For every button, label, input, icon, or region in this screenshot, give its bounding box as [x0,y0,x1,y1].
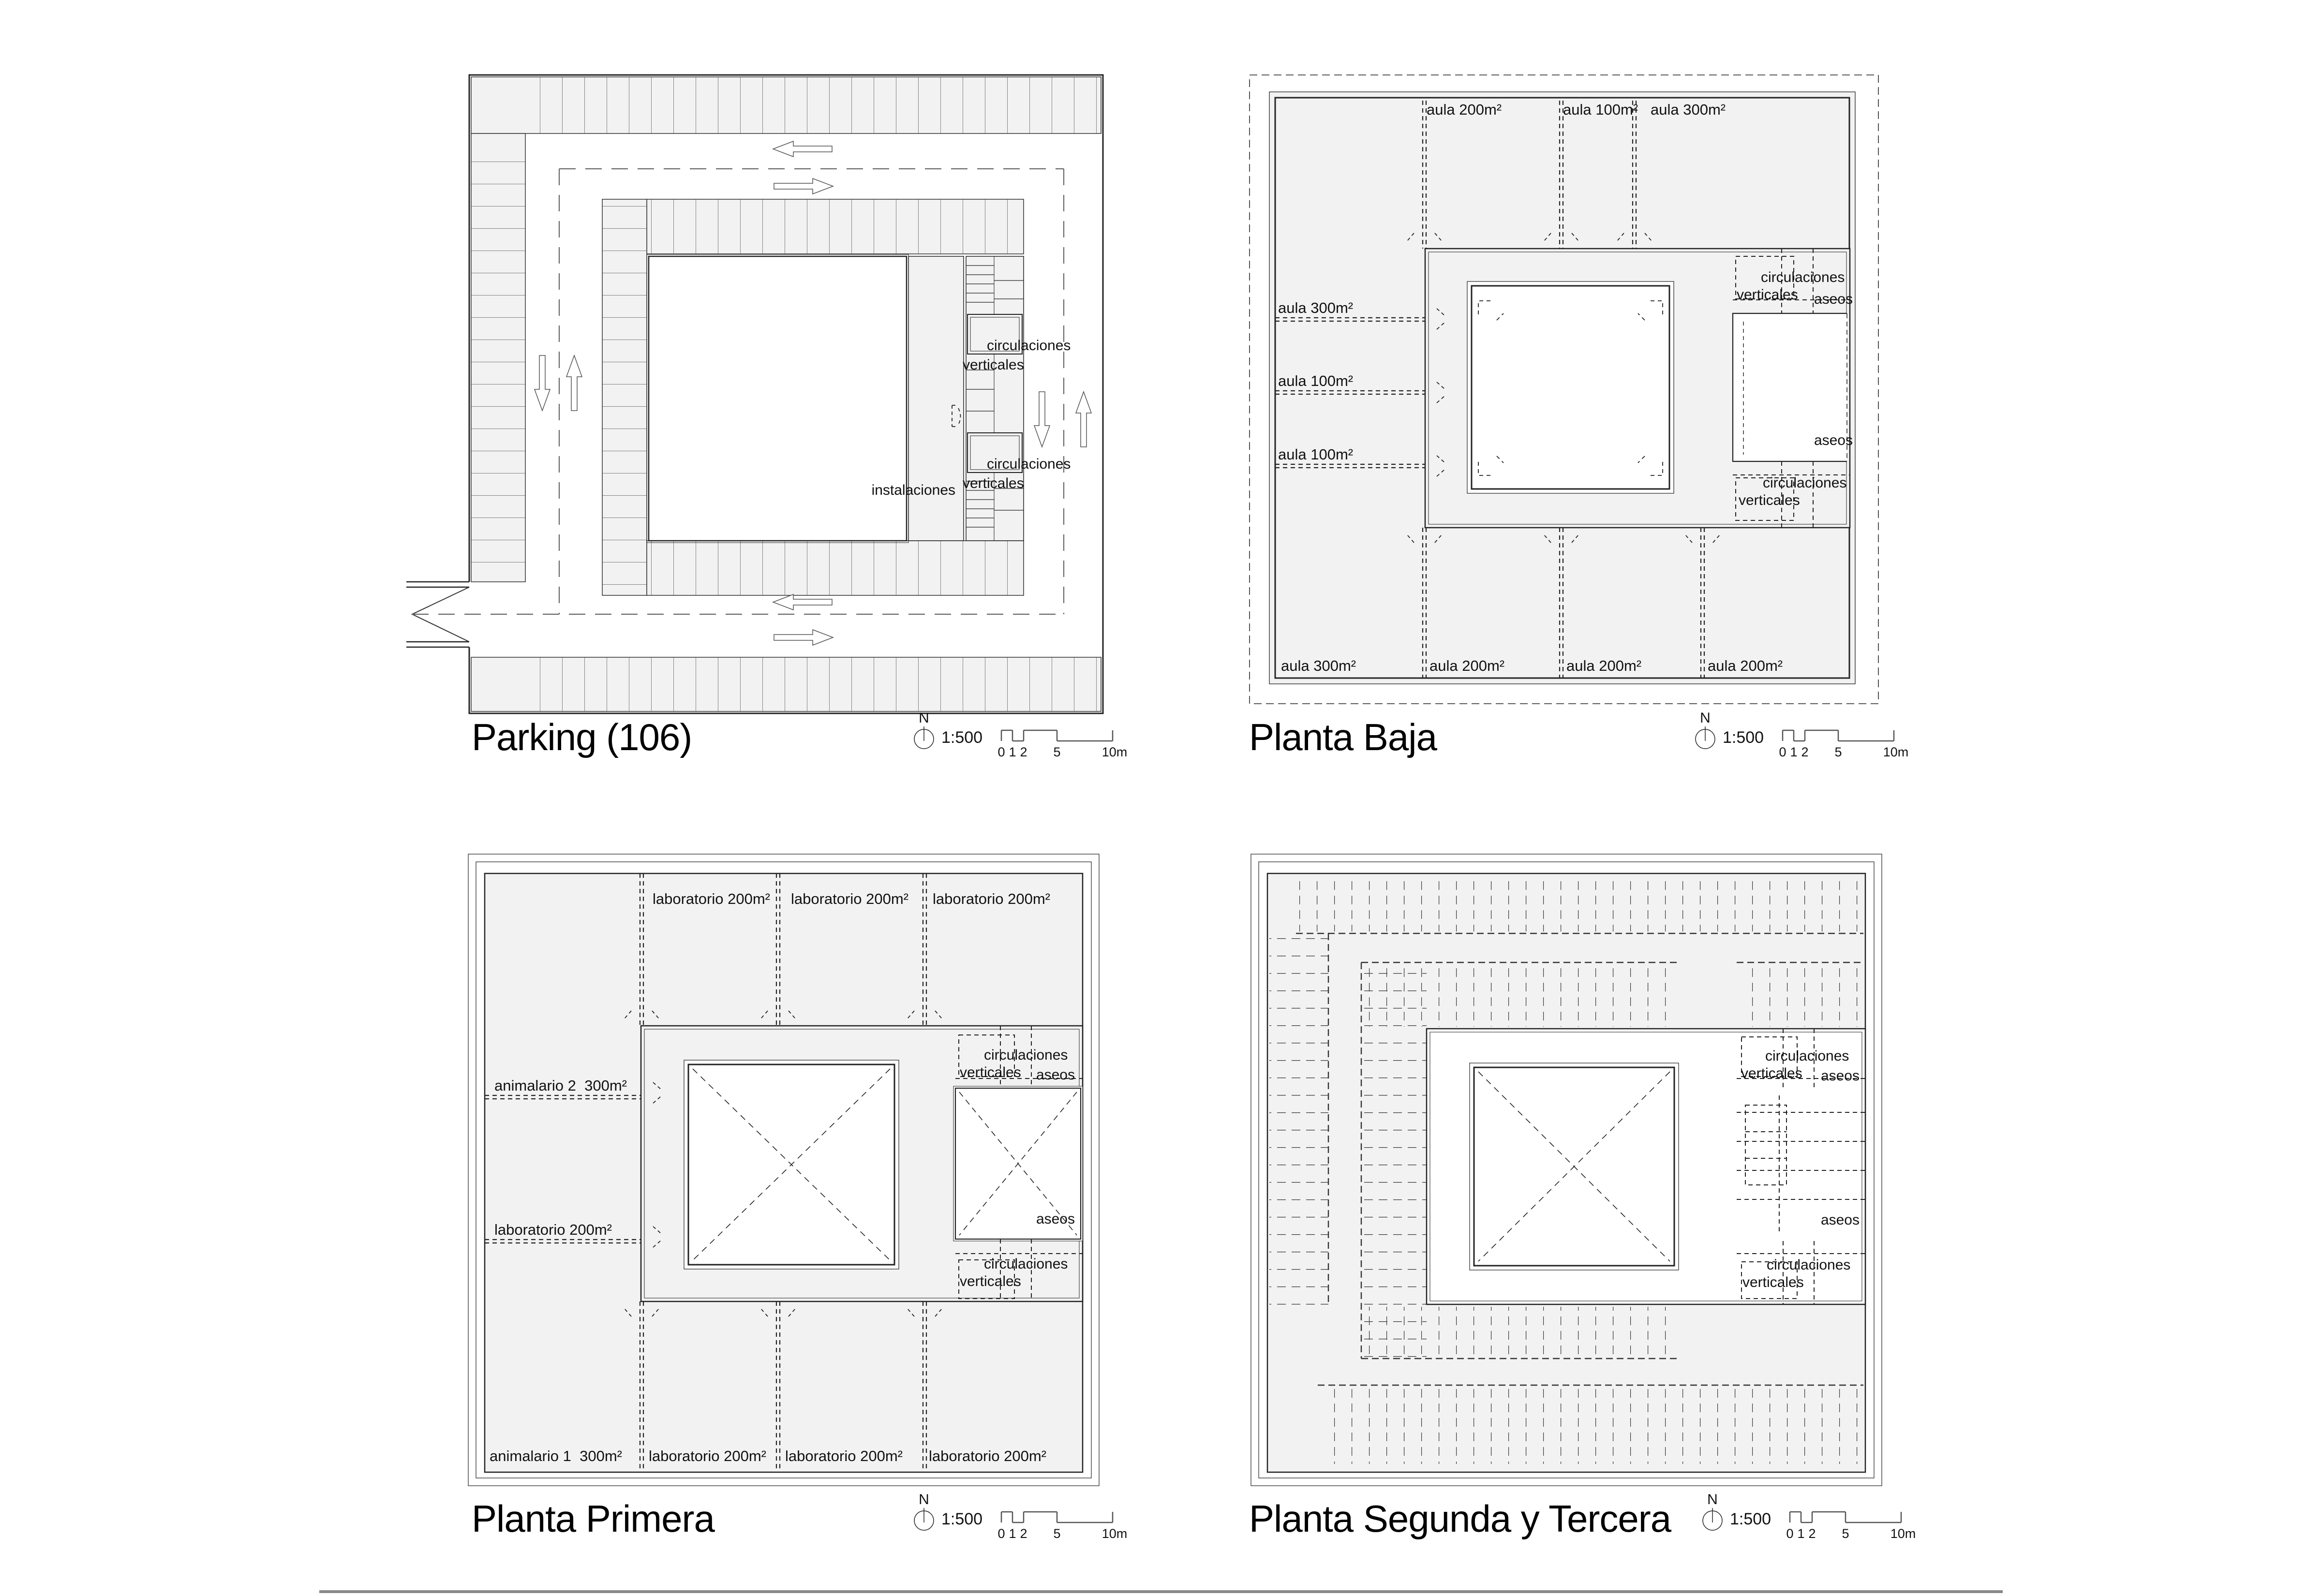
plan-title-parking: Parking (106) [472,717,692,757]
room-label: laboratorio 200m² [653,890,770,908]
scale-ratio: 1:500 [941,728,982,747]
svg-text:N: N [1700,710,1711,726]
room-label: laboratorio 200m² [929,1447,1046,1465]
scale-bar-icon [1001,1512,1113,1522]
north-scale-group: N 1:500 0 1 2 5 10m [1691,707,1918,763]
plan-title-primera: Planta Primera [472,1498,714,1539]
room-label-aseos: aseos [978,1210,1075,1228]
room-label-circulaciones: circulacionesverticales [960,1238,1068,1308]
svg-text:10m: 10m [1890,1526,1916,1541]
svg-text:0: 0 [997,1526,1005,1541]
scale-tick: 10m [1102,745,1128,759]
svg-text:10m: 10m [1102,1526,1128,1541]
room-label-circulaciones: circulacionesverticales [963,317,1071,394]
svg-text:N: N [1707,1492,1718,1507]
room-label: animalario 2 300m² [494,1077,627,1095]
room-label: aula 300m² [1278,299,1353,317]
drawing-sheet: circulacionesverticales circulacionesver… [0,0,2322,1596]
planta-primera-drawing [464,851,1108,1494]
room-label-circulaciones: circulacionesverticales [1742,1239,1850,1309]
svg-text:1: 1 [1797,1526,1804,1541]
room-label: aula 100m² [1563,101,1638,119]
scale-tick: 0 [997,745,1005,759]
north-compass-icon [1703,1508,1722,1530]
room-label-circulaciones: circulacionesverticales [1739,457,1846,527]
svg-text:1:500: 1:500 [1723,728,1764,747]
room-label: animalario 1 300m² [490,1447,622,1465]
panel-planta-baja: aula 200m² aula 100m² aula 300m² aula 30… [1247,73,1881,706]
room-label-circulaciones: circulacionesverticales [963,435,1071,513]
room-label-aseos: aseos [978,1066,1075,1084]
room-label: laboratorio 200m² [933,890,1050,908]
room-label: laboratorio 200m² [494,1221,612,1239]
scale-tick: 1 [1009,745,1016,759]
svg-text:5: 5 [1842,1526,1849,1541]
panel-parking: circulacionesverticales circulacionesver… [406,73,1108,716]
scale-bar-icon [1790,1512,1901,1522]
room-label-circulaciones: circulacionesverticales [1737,251,1845,321]
sheet-footer-rule [319,1590,2003,1593]
plan-title-baja: Planta Baja [1249,717,1437,757]
room-label: aula 200m² [1429,657,1504,675]
room-label: aula 200m² [1708,657,1783,675]
north-compass-icon [914,726,934,749]
room-label: aula 100m² [1278,372,1353,390]
room-label: aula 300m² [1281,657,1356,675]
room-label: laboratorio 200m² [791,890,908,908]
svg-text:0: 0 [1786,1526,1793,1541]
svg-text:N: N [919,1492,929,1507]
scale-tick: 2 [1020,745,1027,759]
room-label: laboratorio 200m² [785,1447,903,1465]
scale-bar-icon [1783,730,1894,741]
svg-text:2: 2 [1801,745,1808,759]
svg-text:2: 2 [1808,1526,1816,1541]
svg-text:5: 5 [1834,745,1842,759]
room-label-aseos: aseos [1763,1211,1860,1229]
north-label: N [919,710,929,726]
planta-segunda-drawing [1247,851,1890,1494]
room-label-circulaciones: circulacionesverticales [960,1029,1068,1099]
north-scale-group: N 1:500 0 1 2 5 10m [909,707,1137,763]
plan-title-segunda: Planta Segunda y Tercera [1249,1498,1671,1539]
svg-text:5: 5 [1053,1526,1060,1541]
svg-text:2: 2 [1020,1526,1027,1541]
svg-text:1:500: 1:500 [1730,1510,1771,1528]
parking-plan-drawing [406,73,1108,716]
north-scale-group: N 1:500 0 1 2 5 10m [1698,1489,1925,1544]
room-label: aula 300m² [1651,101,1726,119]
room-label-instalaciones: instalaciones [844,481,955,500]
room-label-circulaciones: circulacionesverticales [1741,1030,1849,1100]
north-compass-icon [914,1508,934,1530]
panel-planta-primera: laboratorio 200m² laboratorio 200m² labo… [464,851,1108,1494]
room-label: laboratorio 200m² [649,1447,766,1465]
room-label-aseos: aseos [1763,1067,1860,1085]
north-compass-icon [1696,726,1715,749]
panel-planta-segunda: circulacionesverticales aseos aseos circ… [1247,851,1890,1494]
svg-text:1: 1 [1009,1526,1016,1541]
svg-text:0: 0 [1779,745,1786,759]
svg-text:1:500: 1:500 [941,1510,982,1528]
north-scale-group: N 1:500 0 1 2 5 10m [909,1489,1137,1544]
svg-text:10m: 10m [1883,745,1909,759]
room-label: aula 200m² [1566,657,1641,675]
svg-text:1: 1 [1790,745,1797,759]
room-label: aula 200m² [1427,101,1502,119]
scale-bar-icon [1001,730,1113,741]
scale-tick: 5 [1053,745,1060,759]
room-label-aseos: aseos [1756,431,1853,450]
room-label: aula 100m² [1278,445,1353,464]
room-label-aseos: aseos [1756,290,1853,309]
